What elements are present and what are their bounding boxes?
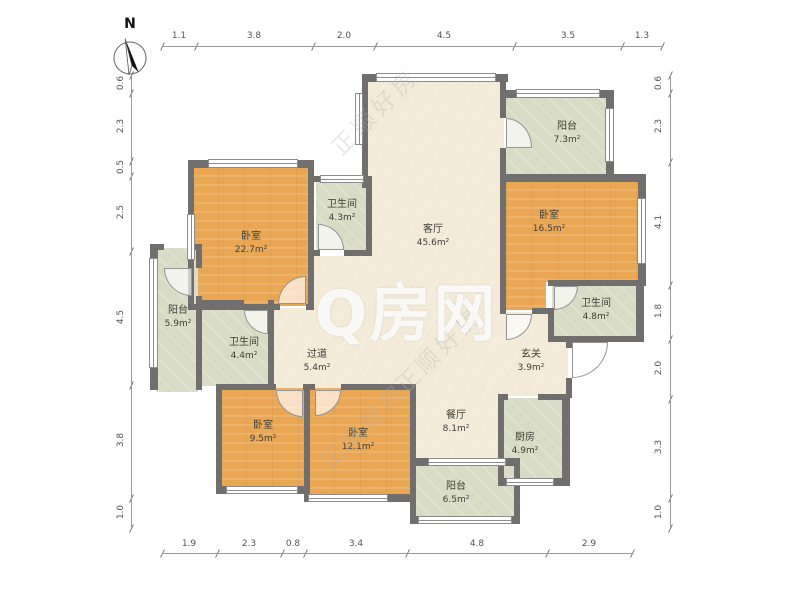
dim-label: 1.0 [654, 497, 664, 527]
room-name: 卫生间 [327, 198, 357, 212]
wall-segment [500, 82, 506, 118]
room-area: 45.6m² [417, 237, 449, 249]
dim-label: 4.5 [116, 302, 126, 332]
label-entry: 玄关 3.9m² [518, 348, 545, 374]
label-balcony-left: 阳台 5.9m² [165, 304, 192, 330]
room-bedroom-right [506, 180, 640, 282]
room-name: 玄关 [518, 348, 545, 362]
dim-label: 2.3 [234, 539, 264, 549]
dim-label: 2.9 [574, 539, 604, 549]
window [308, 494, 388, 502]
room-area: 3.9m² [518, 362, 545, 374]
wall-segment [366, 176, 372, 256]
window [506, 478, 554, 486]
window [605, 108, 614, 162]
room-area: 4.9m² [512, 445, 539, 457]
label-bedroom-right: 卧室 16.5m² [533, 209, 565, 235]
dim-line-left [131, 75, 132, 528]
label-balcony-top-right: 阳台 7.3m² [554, 120, 581, 146]
label-dining: 餐厅 8.1m² [443, 409, 470, 435]
wall-segment [308, 160, 314, 310]
room-name: 阳台 [554, 120, 581, 134]
room-name: 阳台 [165, 304, 192, 318]
window [208, 159, 298, 168]
dim-label: 2.3 [116, 111, 126, 141]
dim-label: 3.4 [341, 539, 371, 549]
wall-segment [498, 394, 504, 486]
room-area: 9.5m² [250, 433, 277, 445]
dim-label: 1.1 [164, 31, 194, 41]
room-area: 16.5m² [533, 223, 565, 235]
label-balcony-bottom: 阳台 6.5m² [443, 480, 470, 506]
room-name: 厨房 [512, 431, 539, 445]
room-area: 7.3m² [554, 134, 581, 146]
label-kitchen: 厨房 4.9m² [512, 431, 539, 457]
north-label: N [120, 16, 140, 32]
window [149, 258, 158, 368]
dim-label: 3.8 [239, 31, 269, 41]
dim-label: 2.0 [654, 353, 664, 383]
dim-label: 0.6 [116, 68, 126, 98]
dim-line-top [162, 46, 662, 47]
label-bedroom-top-left: 卧室 22.7m² [235, 230, 267, 256]
room-name: 阳台 [443, 480, 470, 494]
floor-plan: N [0, 0, 800, 600]
room-name: 客厅 [417, 223, 449, 237]
dim-label: 4.8 [462, 539, 492, 549]
room-name: 餐厅 [443, 409, 470, 423]
window [418, 516, 512, 524]
dim-label: 1.9 [174, 539, 204, 549]
room-area: 5.4m² [304, 362, 331, 374]
dim-label: 0.5 [116, 152, 126, 182]
wall-segment [514, 458, 520, 524]
door-entry [572, 342, 608, 378]
window [516, 89, 600, 98]
window [428, 458, 506, 466]
room-area: 8.1m² [443, 423, 470, 435]
label-bedroom-bottom-left: 卧室 9.5m² [250, 419, 277, 445]
window [637, 198, 646, 264]
label-living: 客厅 45.6m² [417, 223, 449, 249]
dim-label: 2.0 [329, 31, 359, 41]
wall-segment [196, 296, 202, 390]
wall-segment [304, 384, 310, 500]
dim-label: 3.3 [654, 432, 664, 462]
wall-segment [636, 280, 644, 342]
window [226, 486, 298, 494]
dim-label: 0.8 [278, 539, 308, 549]
wall-segment [562, 394, 570, 486]
room-name: 卫生间 [581, 297, 611, 311]
watermark-logo: Q房网 [315, 263, 498, 353]
label-bath-top-left: 卫生间 4.3m² [327, 198, 357, 224]
dim-line-bottom [162, 553, 632, 554]
dim-label: 1.3 [627, 31, 657, 41]
dim-label: 4.1 [654, 207, 664, 237]
room-bedroom-right-ext [506, 278, 546, 310]
wall-segment [196, 300, 244, 306]
dim-label: 2.3 [654, 111, 664, 141]
dim-label: 1.8 [654, 296, 664, 326]
dim-label: 0.6 [654, 68, 664, 98]
room-area: 4.4m² [229, 350, 259, 362]
room-name: 卧室 [250, 419, 277, 433]
room-area: 22.7m² [235, 244, 267, 256]
room-name: 卧室 [235, 230, 267, 244]
wall-segment [196, 244, 202, 268]
room-area: 4.3m² [327, 212, 357, 224]
wall-segment [216, 384, 276, 390]
dim-label: 3.5 [553, 31, 583, 41]
room-area: 4.8m² [581, 311, 611, 323]
wall-segment [500, 148, 506, 314]
dim-line-right [670, 75, 671, 528]
wall-segment [500, 174, 646, 182]
room-name: 卧室 [533, 209, 565, 223]
dim-label: 2.5 [116, 197, 126, 227]
wall-segment [268, 300, 274, 390]
room-name: 卫生间 [229, 336, 259, 350]
label-bath-right: 卫生间 4.8m² [581, 297, 611, 323]
room-area: 5.9m² [165, 318, 192, 330]
window [187, 214, 195, 260]
wall-segment [548, 310, 554, 336]
dim-label: 4.5 [429, 31, 459, 41]
room-area: 6.5m² [443, 494, 470, 506]
wall-segment [410, 384, 416, 524]
dim-label: 3.8 [116, 425, 126, 455]
dim-label: 1.0 [116, 497, 126, 527]
wall-segment [216, 384, 222, 492]
window [320, 175, 364, 183]
label-bath-left: 卫生间 4.4m² [229, 336, 259, 362]
